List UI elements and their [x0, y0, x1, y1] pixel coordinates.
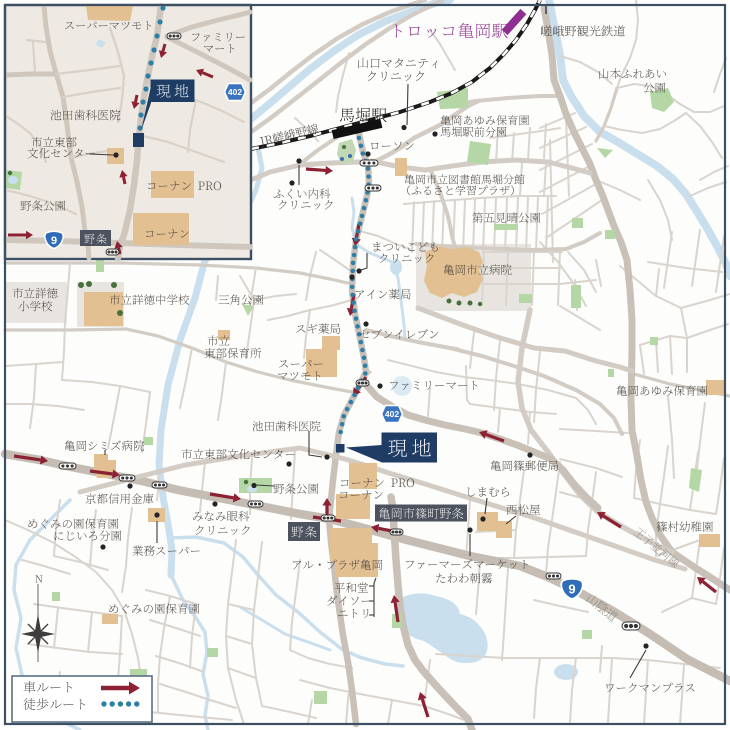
svg-text:402: 402: [385, 409, 399, 419]
svg-text:9: 9: [568, 581, 575, 596]
svg-text:9: 9: [51, 235, 57, 247]
svg-text:402: 402: [228, 87, 242, 97]
